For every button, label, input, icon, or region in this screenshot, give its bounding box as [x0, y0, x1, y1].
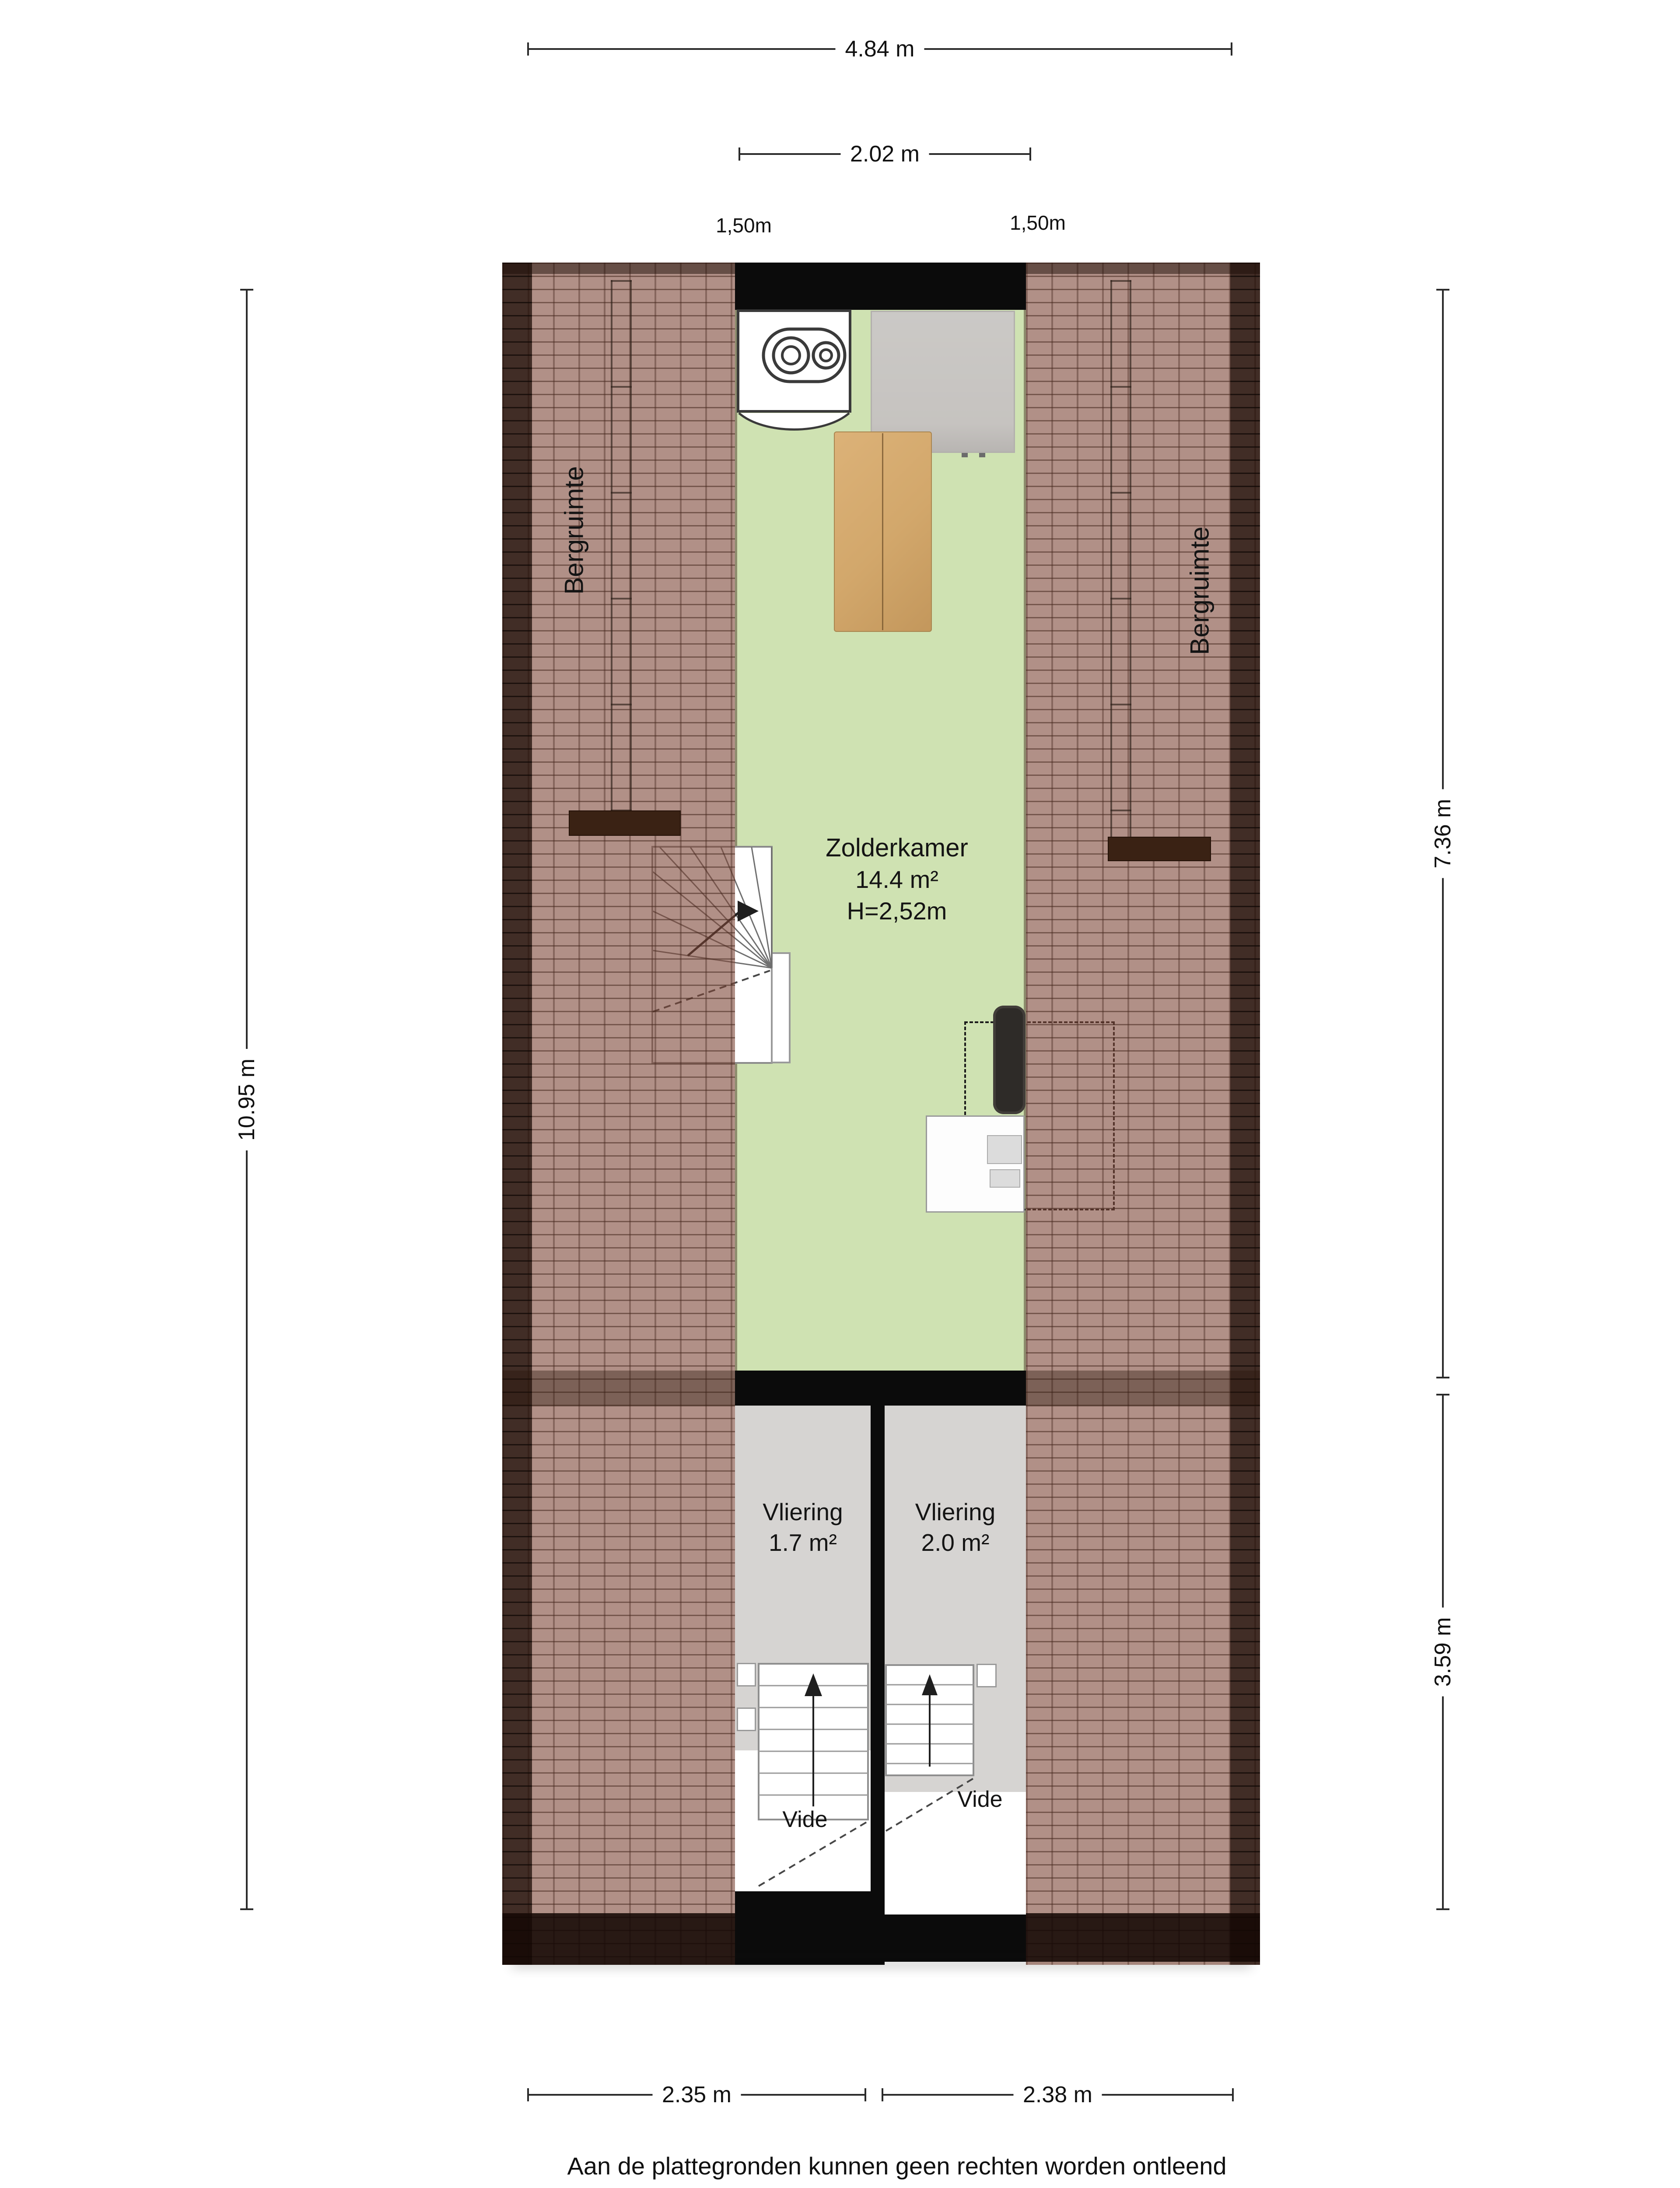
dim-left-height: 10.95 m	[234, 289, 260, 1910]
vide-left-label: Vide	[739, 1806, 871, 1833]
roof-ladder-left	[611, 280, 632, 812]
dormer-top-wall	[735, 263, 1026, 310]
dim-dormer-width: 2.02 m	[738, 141, 1031, 167]
dim-dormer-width-value: 2.02 m	[840, 141, 929, 167]
washing-machine-icon	[736, 309, 852, 440]
dim-right-upper: 7.36 m	[1430, 289, 1456, 1378]
roof-eave-left	[502, 1913, 735, 1965]
roof-beam-left	[569, 810, 681, 836]
footer: Aan de plattegronden kunnen geen rechten…	[96, 2149, 1680, 2188]
dim-window-right: 1,50m	[972, 211, 1103, 235]
roof-top-row-right	[1026, 263, 1260, 274]
roof-beam-right	[1108, 837, 1211, 861]
floorplan-page: { "title": "Zolder plattegrond", "colors…	[0, 0, 1680, 2188]
zolderkamer-name: Zolderkamer	[787, 832, 1006, 864]
dim-bottom-left-value: 2.35 m	[652, 2082, 741, 2108]
vliering-left-area: 1.7 m²	[735, 1527, 871, 1558]
stair-left-railing-b	[737, 1708, 756, 1731]
footer-disclaimer: Aan de plattegronden kunnen geen rechten…	[96, 2149, 1680, 2183]
dim-bottom-left: 2.35 m	[527, 2082, 866, 2108]
vliering-right-name: Vliering	[885, 1497, 1026, 1527]
roof-ridge-left	[502, 263, 532, 1965]
bergruimte-right-label: Bergruimte	[1185, 526, 1215, 655]
stair-bottom-left	[757, 1662, 870, 1891]
cross-wall	[735, 1371, 1026, 1406]
vliering-left-name: Vliering	[735, 1497, 871, 1527]
roof-ladder-right	[1110, 280, 1131, 837]
dim-bottom-right-value: 2.38 m	[1013, 2082, 1102, 2108]
dim-top-width: 4.84 m	[527, 36, 1232, 62]
chair	[993, 1006, 1025, 1114]
desk-item-monitor	[987, 1135, 1022, 1164]
cabinet-foot-right	[979, 453, 985, 457]
dim-right-upper-value: 7.36 m	[1430, 789, 1456, 878]
roof-top-row-left	[502, 263, 735, 274]
vliering-left-label: Vliering 1.7 m²	[735, 1497, 871, 1558]
bergruimte-left-label: Bergruimte	[559, 466, 589, 594]
dim-bottom-right: 2.38 m	[882, 2082, 1234, 2108]
table-seam	[882, 433, 883, 630]
dim-left-height-value: 10.95 m	[234, 1049, 260, 1150]
cabinet-foot-left	[962, 453, 968, 457]
stair-right-railing	[976, 1664, 997, 1687]
roof-ridge-right	[1230, 263, 1260, 1965]
roof-band-left	[502, 1371, 735, 1406]
stair-left-railing-a	[737, 1663, 756, 1687]
center-wall	[871, 1406, 885, 1965]
dim-right-lower-value: 3.59 m	[1430, 1608, 1456, 1697]
desk	[926, 1115, 1025, 1213]
roof-slope-right	[1026, 263, 1260, 1965]
zolderkamer-height: H=2,52m	[787, 895, 1006, 927]
vliering-right-area: 2.0 m²	[885, 1527, 1026, 1558]
dim-window-left: 1,50m	[678, 214, 809, 237]
roof-band-right	[1026, 1371, 1260, 1406]
dim-right-lower: 3.59 m	[1430, 1394, 1456, 1910]
vliering-right-label: Vliering 2.0 m²	[885, 1497, 1026, 1558]
zolderkamer-area: 14.4 m²	[787, 864, 1006, 895]
dim-top-width-value: 4.84 m	[836, 36, 924, 62]
vide-right-label: Vide	[914, 1786, 1046, 1813]
footer-credit: © Zibber www.zibber.nl	[96, 2183, 1680, 2188]
roof-eave-right	[1026, 1913, 1260, 1962]
zolderkamer-label: Zolderkamer 14.4 m² H=2,52m	[787, 832, 1006, 927]
desk-item-keyboard	[990, 1169, 1020, 1188]
